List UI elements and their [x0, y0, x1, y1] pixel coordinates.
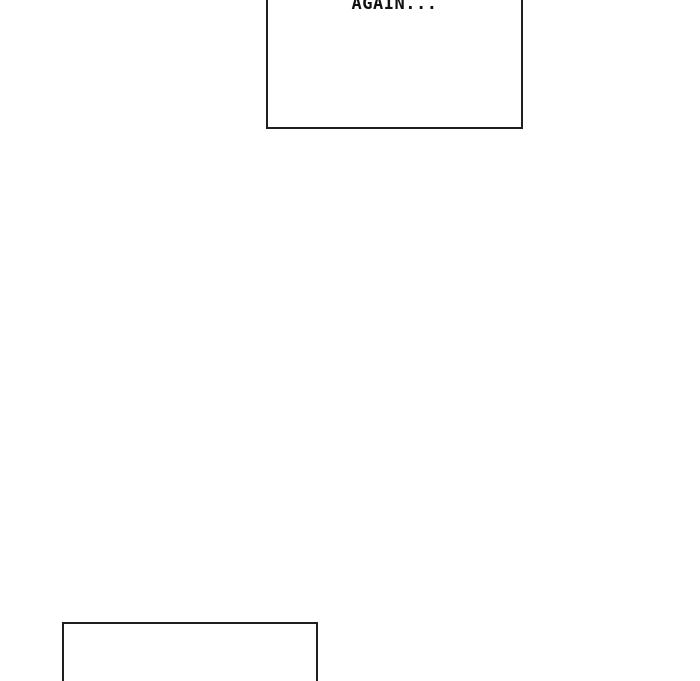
caption-text-top: AGAIN...	[268, 0, 521, 13]
comic-page: AGAIN...	[0, 0, 700, 681]
caption-box-top: AGAIN...	[266, 0, 523, 129]
caption-box-bottom	[62, 622, 318, 681]
